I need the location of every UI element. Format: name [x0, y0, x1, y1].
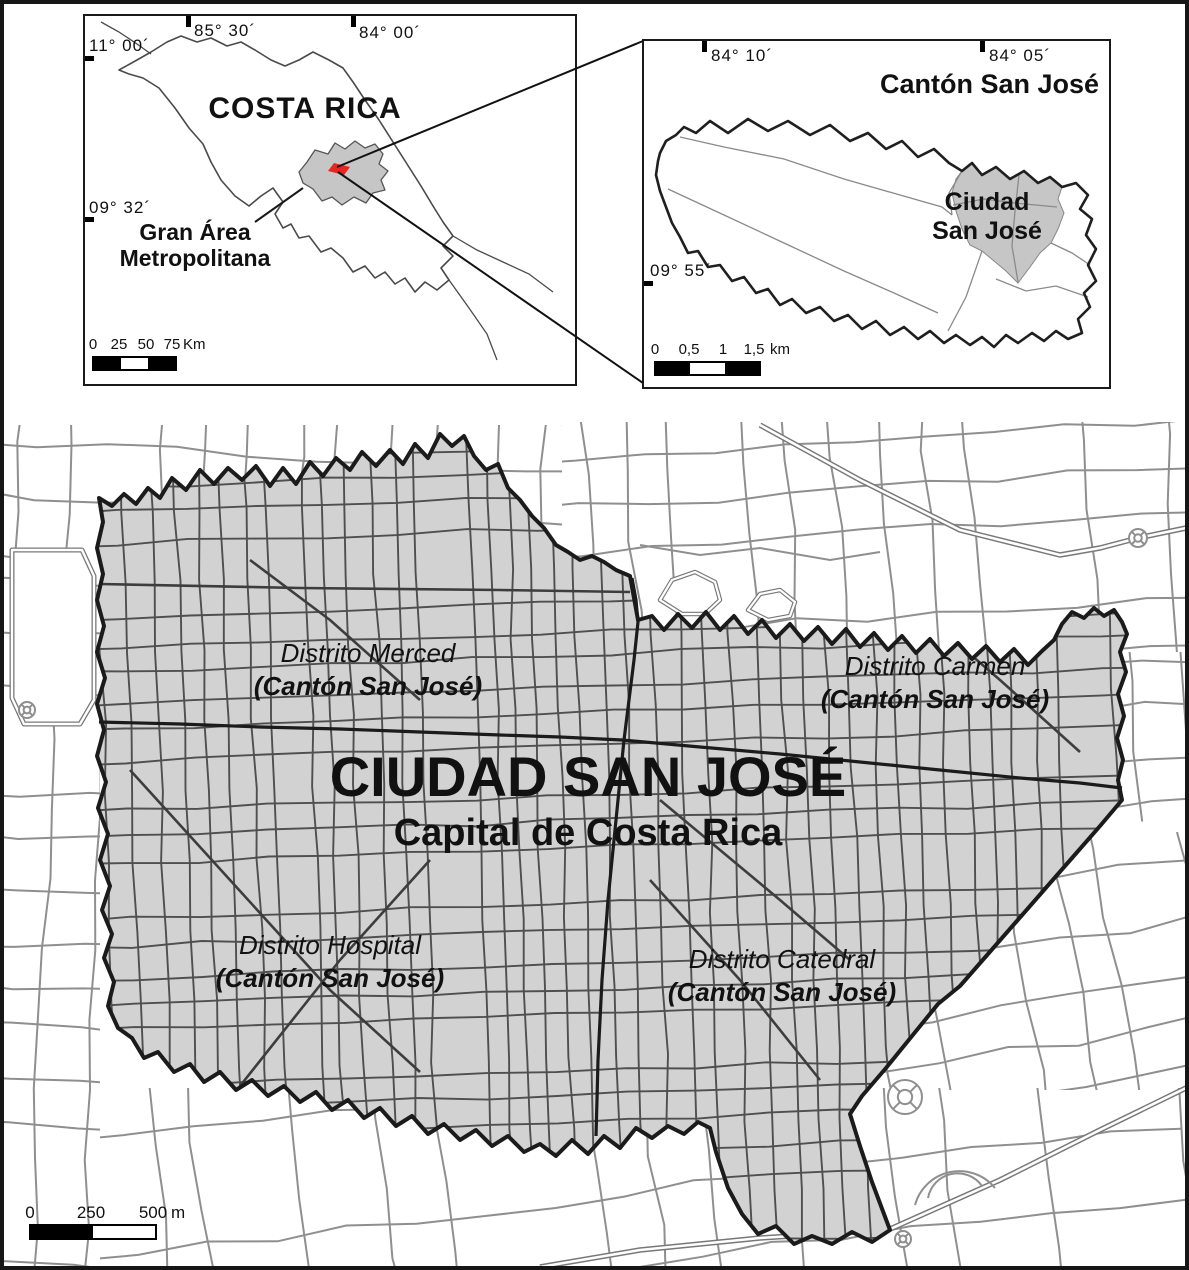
- main-scale-bar: 0 250 500 m: [21, 1203, 221, 1240]
- latitude-label: 09° 55´: [650, 261, 712, 281]
- longitude-tick: [702, 41, 707, 52]
- canton-title: Cantón San José: [880, 69, 1099, 100]
- district-label-merced: Distrito Merced (Cantón San José): [218, 637, 518, 703]
- scale-segment: [148, 358, 175, 369]
- longitude-tick: [980, 41, 985, 52]
- map-figure: Distrito Merced (Cantón San José) Distri…: [0, 0, 1189, 1270]
- district-name: Distrito Catedral: [632, 943, 932, 976]
- scale-number: 500: [139, 1203, 167, 1223]
- map-title: CIUDAD SAN JOSÉ: [238, 744, 938, 809]
- district-canton: (Cantón San José): [632, 976, 932, 1009]
- scale-number: 1: [719, 341, 727, 358]
- scale-unit: km: [770, 341, 790, 358]
- longitude-label: 85° 30´: [194, 21, 256, 41]
- latitude-tick: [85, 56, 94, 61]
- ciudad-label: Ciudad San José: [922, 188, 1052, 246]
- district-label-catedral: Distrito Catedral (Cantón San José): [632, 943, 932, 1009]
- district-label-carmen: Distrito Carmen (Cantón San José): [785, 650, 1085, 716]
- latitude-tick: [644, 281, 653, 286]
- scale-unit: Km: [183, 336, 206, 353]
- scale-number: 1,5: [744, 341, 765, 358]
- longitude-tick: [186, 16, 191, 27]
- inset-scale-bar: 0 25 50 75 Km: [89, 336, 289, 371]
- gam-label-line1: Gran Área: [105, 219, 285, 245]
- longitude-label: 84° 10´: [711, 46, 773, 66]
- scale-segment: [94, 358, 121, 369]
- district-canton: (Cantón San José): [218, 670, 518, 703]
- gam-label-line2: Metropolitana: [105, 245, 285, 271]
- latitude-label: 11° 00´: [89, 36, 150, 56]
- longitude-label: 84° 00´: [359, 23, 421, 43]
- district-name: Distrito Merced: [218, 637, 518, 670]
- scale-segment: [93, 1226, 155, 1238]
- scale-number: 25: [111, 336, 128, 353]
- scale-number: 0,5: [679, 341, 700, 358]
- scale-number: 75: [164, 336, 181, 353]
- scale-number: 250: [77, 1203, 105, 1223]
- scale-number: 0: [651, 341, 659, 358]
- inset-scale-bar: 0 0,5 1 1,5 km: [650, 341, 850, 376]
- country-title: COSTA RICA: [205, 92, 405, 126]
- district-name: Distrito Carmen: [785, 650, 1085, 683]
- district-canton: (Cantón San José): [180, 962, 480, 995]
- scale-number: 0: [89, 336, 97, 353]
- scale-segment: [31, 1226, 93, 1238]
- longitude-tick: [351, 16, 356, 27]
- costa-rica-inset: COSTA RICA Gran Área Metropolitana 11° 0…: [83, 14, 577, 386]
- map-subtitle: Capital de Costa Rica: [238, 812, 938, 855]
- scale-unit: m: [171, 1203, 185, 1223]
- gam-label: Gran Área Metropolitana: [105, 219, 285, 271]
- district-name: Distrito Hospital: [180, 929, 480, 962]
- scale-segment: [690, 363, 725, 374]
- ciudad-label-line1: Ciudad: [922, 188, 1052, 217]
- canton-inset: Cantón San José Ciudad San José 84° 10´ …: [642, 39, 1111, 389]
- scale-number: 50: [138, 336, 155, 353]
- scale-segment: [121, 358, 148, 369]
- costa-rica-outline-map: [85, 16, 575, 384]
- longitude-label: 84° 05´: [989, 46, 1051, 66]
- district-label-hospital: Distrito Hospital (Cantón San José): [180, 929, 480, 995]
- district-canton: (Cantón San José): [785, 683, 1085, 716]
- scale-segment: [725, 363, 759, 374]
- ciudad-label-line2: San José: [922, 217, 1052, 246]
- latitude-label: 09° 32´: [89, 198, 151, 218]
- scale-segment: [656, 363, 690, 374]
- latitude-tick: [85, 217, 94, 222]
- scale-number: 0: [25, 1203, 34, 1223]
